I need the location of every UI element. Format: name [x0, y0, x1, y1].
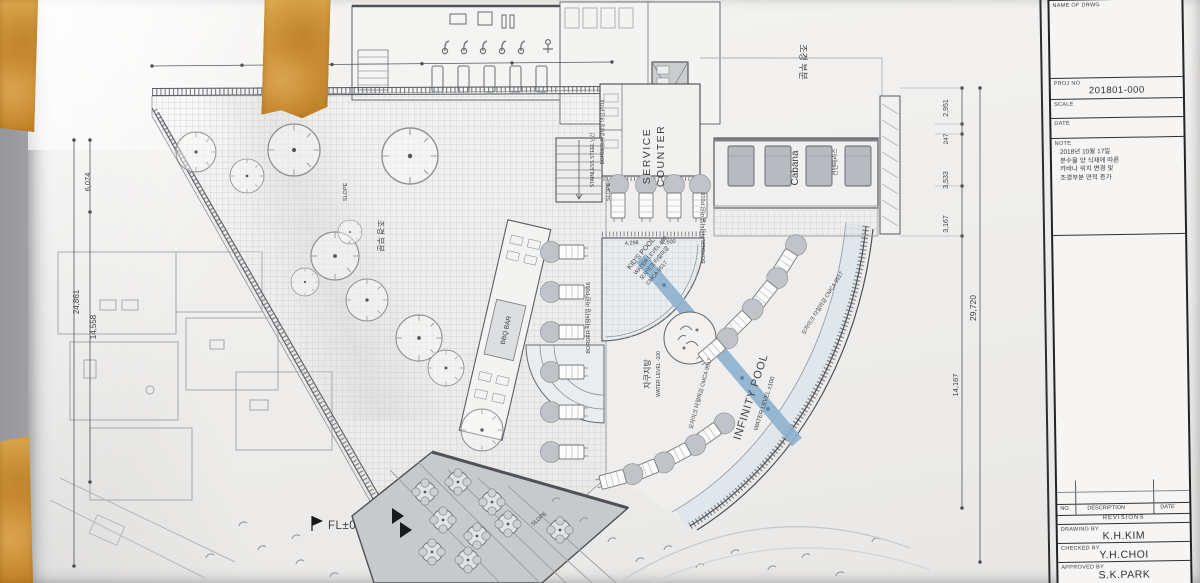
dim-right-seg-1: 2,951: [943, 99, 950, 117]
dim-right-overall: 29,720: [968, 295, 978, 321]
proj-no-value: 201801-000: [1051, 84, 1183, 97]
tree-icon: [461, 409, 503, 451]
lounger-icon: [541, 402, 589, 423]
tree-icon: [176, 132, 216, 172]
label-service-counter-1: SERVICE: [641, 128, 653, 184]
drawing-by-value: K.H.KIM: [1058, 529, 1190, 543]
photo-of-floor-plan: BBQ BAR: [0, 0, 1200, 583]
lounger-icon: [541, 442, 589, 463]
rev-description-label: DESCRIPTION: [1087, 505, 1125, 512]
cabana-bed: [765, 146, 791, 186]
dim-left-inner: 14,558: [89, 314, 98, 339]
dim-left-top: 6,074: [83, 173, 92, 192]
tree-icon: [230, 159, 264, 193]
title-block: NAME OF DRWG PROJ NO 201801-000 SCALE DA…: [1039, 0, 1194, 583]
title-block-projno-box: PROJ NO 201801-000: [1051, 77, 1183, 100]
approved-by-box: APPROVED BY S.K.PARK: [1058, 561, 1190, 583]
name-of-drwg-label: NAME OF DRWG: [1052, 2, 1100, 9]
cabana-bed: [728, 146, 754, 186]
title-block-date-box: DATE: [1051, 117, 1183, 139]
right-planter-strip: [880, 96, 900, 234]
label-cabana-korean: 선탠테라스: [831, 148, 839, 176]
tree-icon: [338, 220, 362, 244]
label-slope-1: SLOPE: [343, 182, 349, 201]
level-marker: FL±0: [312, 516, 356, 532]
label-jacuzzi: 자쿠지탕: [642, 359, 652, 389]
tree-icon: [268, 124, 320, 176]
checked-by-box: CHECKED BY Y.H.CHOI: [1058, 542, 1190, 563]
masking-tape-top: [261, 0, 330, 119]
revision-grid: [1057, 479, 1189, 505]
note-line-4: 조경부분 면적 증가: [1060, 173, 1119, 182]
note-label: NOTE: [1055, 141, 1072, 147]
dim-right-seg-3: 3,533: [943, 171, 950, 189]
tree-icon: [382, 128, 438, 184]
label-border-tile-3: BORDER 자형타일 마감 P016: [599, 99, 606, 164]
checked-by-value: Y.H.CHOI: [1058, 548, 1190, 562]
label-border-tile-1: BORDER 자형타일 마감 P016: [584, 282, 592, 353]
drawing-by-box: DRAWING BY K.H.KIM: [1058, 523, 1190, 544]
dim-pool-2: 2,500: [662, 239, 676, 246]
dim-right-lower: 14,167: [951, 374, 960, 397]
tree-icon: [428, 350, 464, 386]
note-line-1: 2018년 10월 17일: [1060, 148, 1119, 157]
title-block-scale-box: SCALE: [1051, 98, 1183, 119]
approved-by-value: S.K.PARK: [1058, 568, 1190, 582]
rev-no-label: NO.: [1060, 506, 1070, 512]
date-label: DATE: [1054, 121, 1070, 127]
cabana-bed: [845, 146, 871, 186]
lounger-icon: [541, 242, 589, 263]
rev-date-label: DATE: [1160, 504, 1174, 510]
label-service-counter-2: COUNTER: [655, 125, 667, 187]
cabana-bed: [806, 146, 832, 186]
title-block-name-box: NAME OF DRWG: [1049, 0, 1182, 79]
label-stainless-rail: STAINLESS STEEL 난간: [589, 132, 596, 187]
lounger-icon: [541, 322, 589, 343]
label-landscape-zone-2: 조경 부분: [376, 220, 386, 252]
dim-right-seg-4: 3,167: [943, 215, 950, 233]
lounger-icon: [690, 175, 711, 223]
label-border-tile-2: BORDER 자형타일 마감 P016: [699, 192, 707, 263]
label-fl-level: FL±0: [328, 520, 356, 532]
tree-icon: [291, 268, 319, 296]
scale-label: SCALE: [1054, 102, 1074, 108]
note-line-3: 카바나 위치 변경 및: [1060, 165, 1119, 174]
label-cabana: Cabana: [790, 150, 801, 185]
label-jacuzzi-level: WATER LEVEL -100: [656, 351, 662, 397]
dim-pool-1: 4,298: [625, 240, 639, 247]
paths: [618, 527, 930, 583]
label-landscape-zone-1: 조경 부분: [798, 44, 809, 80]
label-slope-2: SLOPE: [606, 182, 612, 201]
plan-drawing: BBQ BAR: [0, 0, 1200, 583]
tree-icon: [346, 279, 388, 321]
title-block-note-box: NOTE 2018년 10월 17일 분수물 양 식재에 따른 카바나 위치 변…: [1052, 137, 1186, 236]
dim-right-seg-2: 247: [943, 133, 950, 144]
lounger-icon: [541, 362, 589, 383]
dim-left-overall: 24,861: [72, 289, 81, 314]
masking-tape-left-top: [0, 0, 38, 132]
lounger-icon: [541, 282, 589, 303]
masking-tape-left-bottom: [0, 436, 33, 583]
